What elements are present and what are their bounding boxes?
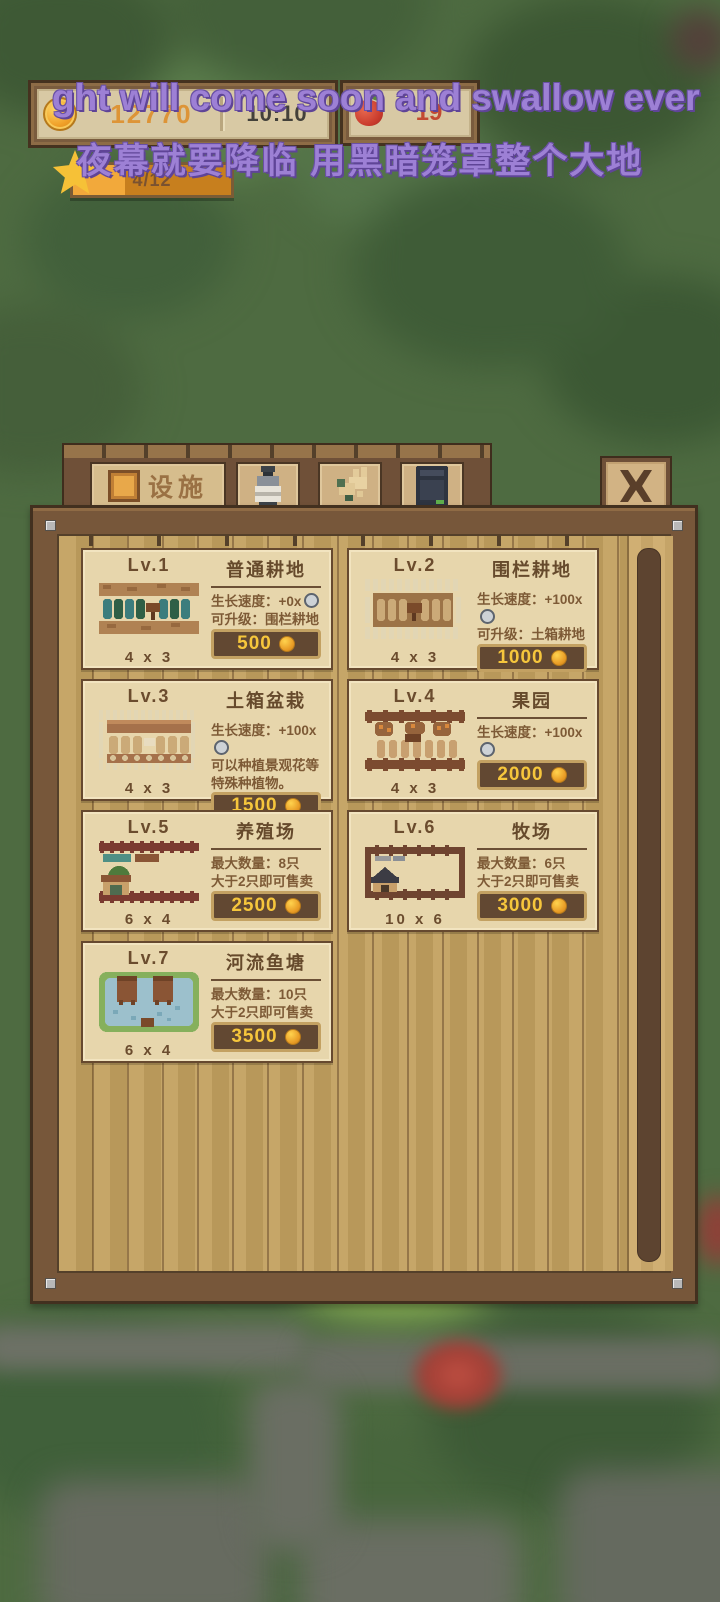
tab-facilities[interactable]: 设施 — [90, 462, 226, 510]
card-stat: 最大数量：8只 — [211, 855, 323, 873]
coin-icon — [551, 898, 567, 914]
card-title: 果园 — [475, 687, 589, 713]
background-path — [40, 1480, 270, 1602]
screw — [672, 520, 683, 531]
coin-icon — [279, 636, 295, 652]
card-level: Lv.7 — [93, 948, 205, 969]
tab-bar-top-board — [64, 445, 490, 458]
oven-icon — [412, 464, 452, 508]
card-image — [95, 708, 203, 772]
card-title: 土箱盆栽 — [209, 687, 323, 713]
buy-button[interactable]: 1000 — [477, 644, 587, 672]
buy-button[interactable]: 3000 — [477, 891, 587, 921]
card-stats: 最大数量：6只大于2只即可售卖 — [475, 855, 589, 890]
buy-button[interactable]: 500 — [211, 629, 321, 659]
tab-machines[interactable] — [236, 462, 300, 510]
card-stat-text: 生长速度：+100x — [477, 725, 582, 740]
buy-button[interactable]: 2500 — [211, 891, 321, 921]
card-title: 普通耕地 — [209, 556, 323, 582]
coin-icon — [551, 767, 567, 783]
coin-icon — [285, 898, 301, 914]
coin-icon — [551, 650, 567, 666]
card-level: Lv.2 — [359, 555, 471, 576]
card-title: 牧场 — [475, 818, 589, 844]
card-title-divider — [477, 717, 587, 719]
facility-card: Lv.6 10 x 6 牧场 最大数量：6只大于2只即可售卖 3000 — [347, 810, 599, 932]
screw — [45, 1278, 56, 1289]
shop-panel: Lv.1 4 x 3 普通耕地 生长速度：+0x可升级：围栏耕地 500 Lv.… — [30, 505, 698, 1304]
price-label: 2500 — [231, 895, 277, 917]
facility-card: Lv.5 6 x 4 养殖场 最大数量：8只大于2只即可售卖 2500 — [81, 810, 333, 932]
dialogue-text-zh: 夜幕就要降临 用黑暗笼罩整个大地 — [0, 133, 720, 184]
card-stat: 可升级：围栏耕地 — [211, 611, 323, 629]
dialogue-text-en: ght will come soon and swallow ever — [52, 77, 700, 119]
background-path — [560, 1470, 720, 1602]
card-image — [361, 839, 469, 903]
card-stat: 大于2只即可售卖 — [477, 873, 589, 891]
card-level: Lv.3 — [93, 686, 205, 707]
scrollbar-thumb[interactable] — [637, 548, 661, 1262]
card-level: Lv.1 — [93, 555, 205, 576]
screw — [672, 1278, 683, 1289]
card-stats: 生长速度：+100x可升级：土箱耕地 — [475, 591, 589, 644]
card-stats: 生长速度：+100x — [475, 724, 589, 759]
card-stat: 最大数量：6只 — [477, 855, 589, 873]
close-icon — [616, 468, 656, 509]
card-stats: 最大数量：8只大于2只即可售卖 — [209, 855, 323, 890]
animal-icon — [331, 467, 369, 505]
card-stat-text: 大于2只即可售卖 — [477, 874, 579, 889]
tab-oven[interactable] — [400, 462, 464, 510]
card-size: 4 x 3 — [359, 780, 471, 797]
card-stat-text: 大于2只即可售卖 — [211, 1005, 313, 1020]
card-stat: 最大数量：10只 — [211, 986, 323, 1004]
card-title-divider — [477, 848, 587, 850]
background-path — [250, 1380, 340, 1550]
card-stat: 生长速度：+100x — [477, 591, 589, 626]
card-title: 河流鱼塘 — [209, 949, 323, 975]
price-label: 3000 — [497, 895, 543, 917]
price-label: 3500 — [231, 1026, 277, 1048]
facility-card: Lv.4 4 x 3 果园 生长速度：+100x 2000 — [347, 679, 599, 801]
shop-panel-content: Lv.1 4 x 3 普通耕地 生长速度：+0x可升级：围栏耕地 500 Lv.… — [57, 534, 671, 1273]
card-title-divider — [211, 848, 321, 850]
card-stat-text: 生长速度：+100x — [477, 592, 582, 607]
card-image — [361, 708, 469, 772]
card-image — [95, 839, 203, 903]
card-size: 10 x 6 — [359, 911, 471, 928]
facility-card: Lv.3 4 x 3 土箱盆栽 生长速度：+100x可以种植景观花等特殊种植物。… — [81, 679, 333, 801]
clock-icon — [480, 742, 495, 757]
tab-animals[interactable] — [318, 462, 382, 510]
card-stats: 生长速度：+100x可以种植景观花等特殊种植物。 — [209, 722, 323, 792]
card-stat: 生长速度：+100x — [211, 722, 323, 757]
card-stat-text: 最大数量：8只 — [211, 856, 300, 871]
plot-icon — [108, 470, 140, 502]
card-size: 6 x 4 — [93, 1042, 205, 1059]
facility-card: Lv.2 4 x 3 围栏耕地 生长速度：+100x可升级：土箱耕地 1000 — [347, 548, 599, 670]
coin-icon — [285, 1029, 301, 1045]
plank-notches — [59, 536, 669, 546]
buy-button[interactable]: 2000 — [477, 760, 587, 790]
card-stat-text: 可以种植景观花等特殊种植物。 — [211, 758, 319, 791]
card-stat: 可升级：土箱耕地 — [477, 626, 589, 644]
clock-icon — [480, 609, 495, 624]
background-red-plant — [408, 1335, 508, 1415]
buy-button[interactable]: 3500 — [211, 1022, 321, 1052]
background-path — [300, 1338, 720, 1390]
facility-card: Lv.7 6 x 4 河流鱼塘 最大数量：10只大于2只即可售卖 3500 — [81, 941, 333, 1063]
tab-facilities-label: 设施 — [148, 468, 208, 504]
price-label: 500 — [237, 633, 272, 655]
facility-card: Lv.1 4 x 3 普通耕地 生长速度：+0x可升级：围栏耕地 500 — [81, 548, 333, 670]
card-title-divider — [211, 586, 321, 588]
game-screen: 12770 10:10 19 4/12 ght will come soon a… — [0, 0, 720, 1602]
card-stat-text: 大于2只即可售卖 — [211, 874, 313, 889]
card-title: 围栏耕地 — [475, 556, 589, 582]
card-stat: 生长速度：+100x — [477, 724, 589, 759]
jar-icon — [251, 466, 285, 506]
facility-card-grid: Lv.1 4 x 3 普通耕地 生长速度：+0x可升级：围栏耕地 500 Lv.… — [81, 548, 601, 1063]
card-size: 4 x 3 — [359, 649, 471, 666]
card-stat-text: 最大数量：10只 — [211, 987, 307, 1002]
card-stats: 最大数量：10只大于2只即可售卖 — [209, 986, 323, 1021]
card-title: 养殖场 — [209, 818, 323, 844]
card-stat-text: 可升级：围栏耕地 — [211, 612, 319, 627]
clock-icon — [214, 740, 229, 755]
card-stat: 大于2只即可售卖 — [211, 1004, 323, 1022]
card-stat: 可以种植景观花等特殊种植物。 — [211, 757, 323, 792]
card-stat-text: 生长速度：+0x — [211, 594, 301, 609]
card-stat-text: 可升级：土箱耕地 — [477, 627, 585, 642]
shop-tab-bar: 设施 — [62, 443, 492, 513]
card-stat-text: 最大数量：6只 — [477, 856, 566, 871]
background-path — [0, 1325, 310, 1371]
card-level: Lv.5 — [93, 817, 205, 838]
price-label: 1000 — [497, 647, 543, 669]
card-stats: 生长速度：+0x可升级：围栏耕地 — [209, 593, 323, 628]
screw — [45, 520, 56, 531]
card-stat: 生长速度：+0x — [211, 593, 323, 611]
card-size: 6 x 4 — [93, 911, 205, 928]
card-title-divider — [211, 979, 321, 981]
card-image — [361, 577, 469, 641]
clock-icon — [304, 593, 319, 608]
card-level: Lv.6 — [359, 817, 471, 838]
card-stat: 大于2只即可售卖 — [211, 873, 323, 891]
card-stat-text: 生长速度：+100x — [211, 723, 316, 738]
price-label: 2000 — [497, 764, 543, 786]
card-size: 4 x 3 — [93, 780, 205, 797]
card-size: 4 x 3 — [93, 649, 205, 666]
card-image — [95, 970, 203, 1034]
card-image — [95, 577, 203, 641]
card-level: Lv.4 — [359, 686, 471, 707]
